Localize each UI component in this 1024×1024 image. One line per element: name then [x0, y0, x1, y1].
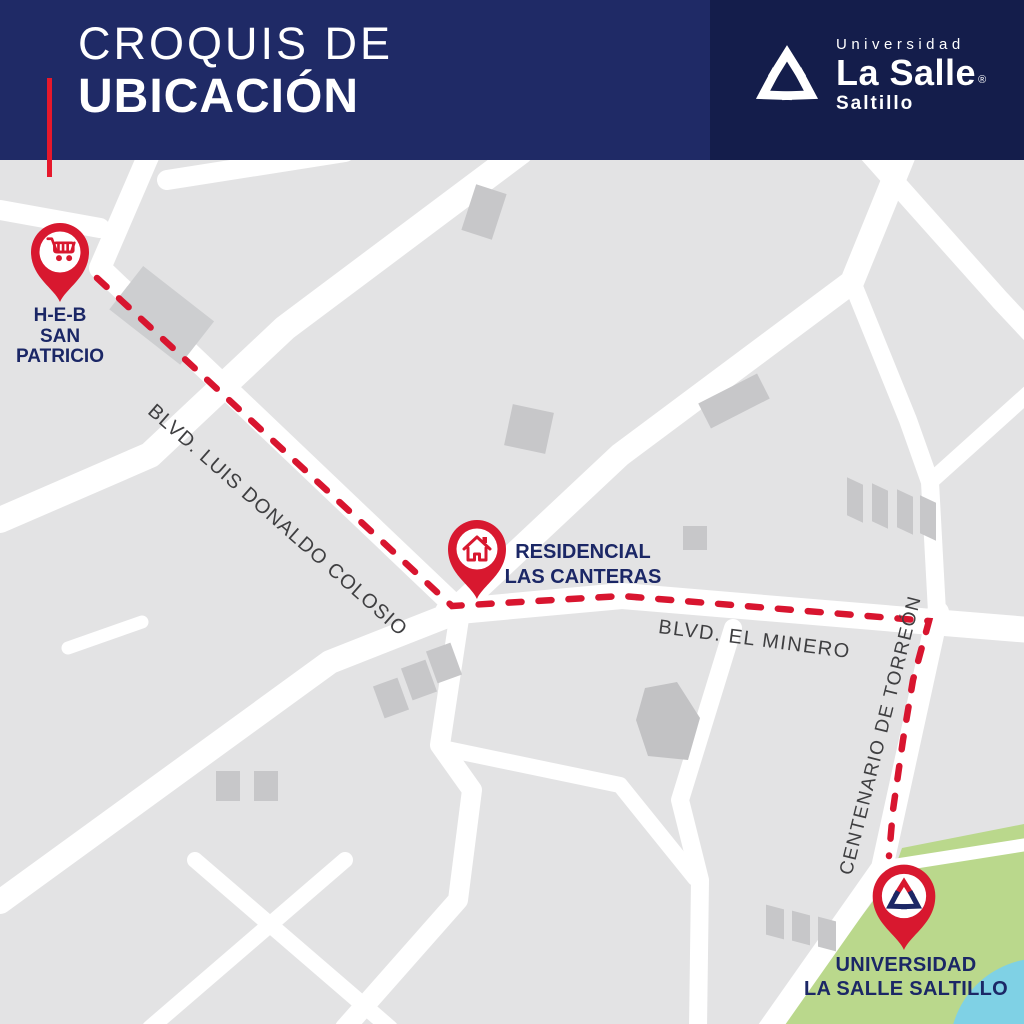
- logo-universidad: Universidad: [836, 36, 987, 53]
- title-line-1: CROQUIS DE: [78, 20, 393, 67]
- building: [216, 771, 240, 801]
- building: [847, 477, 863, 522]
- map-canvas: [0, 160, 1024, 1024]
- building: [920, 495, 936, 540]
- croquis-page: CROQUIS DE UBICACIÓN Universidad La Sall…: [0, 0, 1024, 1024]
- building: [897, 489, 913, 534]
- building: [818, 917, 836, 952]
- registered-mark: ®: [978, 74, 987, 86]
- lasalle-logo-icon: [748, 38, 826, 124]
- logo-text: Universidad La Salle® Saltillo: [836, 36, 987, 115]
- university-label: UNIVERSIDAD LA SALLE SALTILLO: [781, 953, 1024, 1002]
- logo-saltillo: Saltillo: [836, 93, 987, 115]
- page-title: CROQUIS DE UBICACIÓN: [78, 20, 393, 123]
- logo-lasalle: La Salle®: [836, 55, 987, 91]
- header-banner: CROQUIS DE UBICACIÓN Universidad La Sall…: [0, 0, 1024, 160]
- building: [766, 905, 784, 940]
- heb-label: H-E-B SAN PATRICIO: [0, 306, 120, 368]
- building: [504, 404, 554, 454]
- canteras-label: RESIDENCIAL LAS CANTERAS: [498, 540, 668, 590]
- building: [792, 911, 810, 946]
- building: [254, 771, 278, 801]
- building: [872, 483, 888, 528]
- title-line-2: UBICACIÓN: [78, 72, 393, 122]
- red-accent-line: [47, 78, 52, 177]
- building: [683, 526, 707, 550]
- lasalle-logo: Universidad La Salle® Saltillo: [748, 36, 1008, 126]
